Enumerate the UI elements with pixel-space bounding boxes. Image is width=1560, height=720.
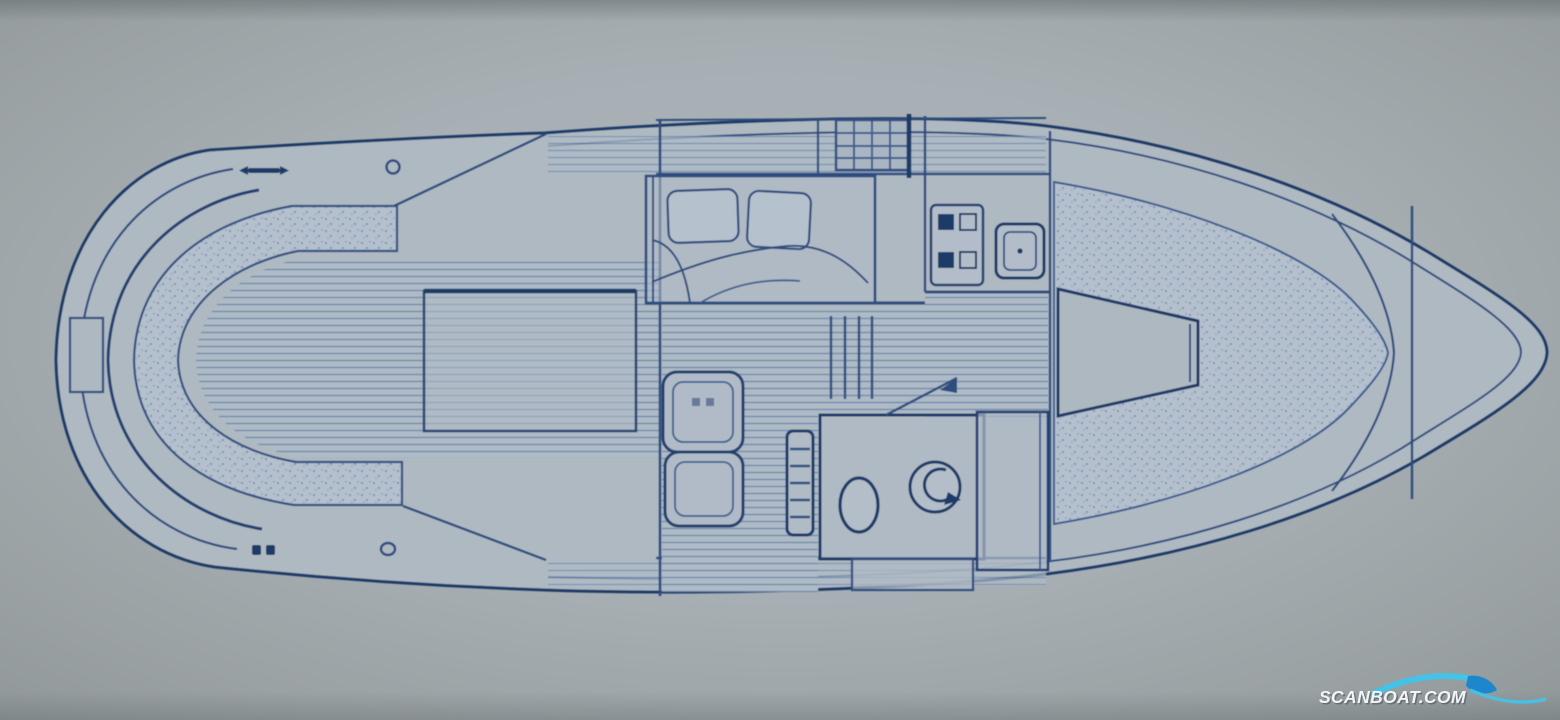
wardrobe <box>977 412 1048 570</box>
washbasin-icon <box>910 462 961 512</box>
cabin-ladder <box>787 431 813 535</box>
head-step-box <box>852 559 973 590</box>
salon-seat-forward <box>663 372 743 452</box>
watermark-text: SCANBOAT.COM <box>1319 687 1466 707</box>
boat-floorplan-drawing: SCANBOAT.COM SCANBOAT.COM <box>0 0 1560 720</box>
salon-seat-aft <box>665 452 743 526</box>
scanboat-watermark: SCANBOAT.COM SCANBOAT.COM <box>1319 676 1546 709</box>
berth-pillow-left <box>667 189 739 243</box>
companionway-hatch-grate <box>836 114 909 178</box>
scanned-boat-floorplan: SCANBOAT.COM SCANBOAT.COM <box>0 0 1560 720</box>
galley-stove <box>931 205 983 285</box>
berth-pillow-right <box>747 190 812 249</box>
double-berth <box>646 176 875 303</box>
galley-sink <box>996 224 1044 278</box>
head-compartment <box>820 415 984 559</box>
galley-plank-floor <box>925 294 1048 420</box>
side-deck-top <box>548 136 1046 174</box>
swim-platform <box>70 318 103 392</box>
toilet-icon <box>840 478 878 532</box>
engine-hatch <box>424 291 636 431</box>
